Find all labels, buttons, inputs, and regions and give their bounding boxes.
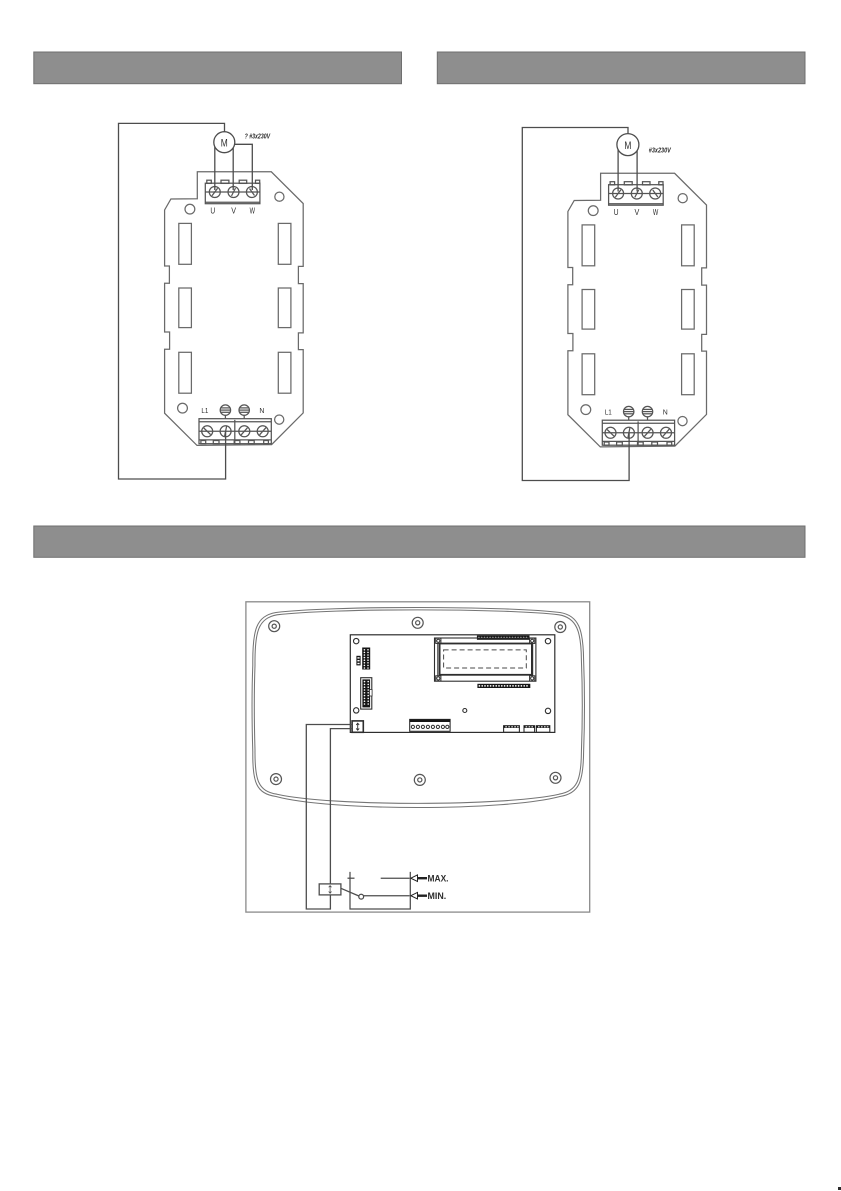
svg-text:M: M [221,137,228,149]
svg-text:MAX.: MAX. [428,874,449,885]
svg-text:? #3x230V: ? #3x230V [245,134,271,141]
svg-text:M: M [624,140,631,152]
svg-text:#3x230V: #3x230V [649,148,672,155]
svg-text:MIN.: MIN. [428,891,447,902]
